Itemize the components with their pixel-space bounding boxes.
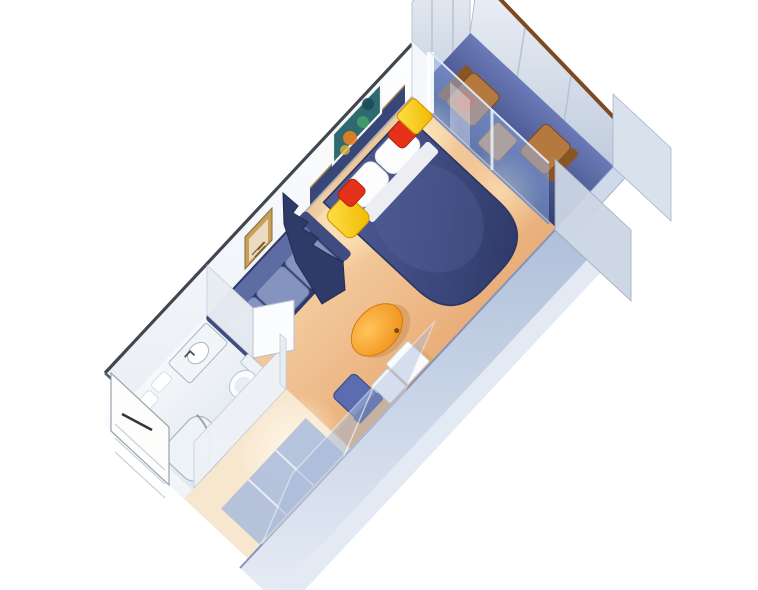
stateroom-floorplan-rendering: [0, 0, 758, 590]
bathroom-door: [253, 300, 294, 358]
floorplan-canvas: [0, 0, 758, 590]
neighbor-bulwark: [613, 94, 671, 221]
reef-artwork-deep: [362, 98, 374, 110]
door-frame-bright-edge: [427, 52, 434, 113]
reef-artwork-coral: [357, 116, 369, 128]
bathroom-wall-stub: [280, 334, 286, 389]
reef-artwork-fish: [343, 131, 357, 145]
reef-artwork-coral2: [340, 145, 350, 155]
